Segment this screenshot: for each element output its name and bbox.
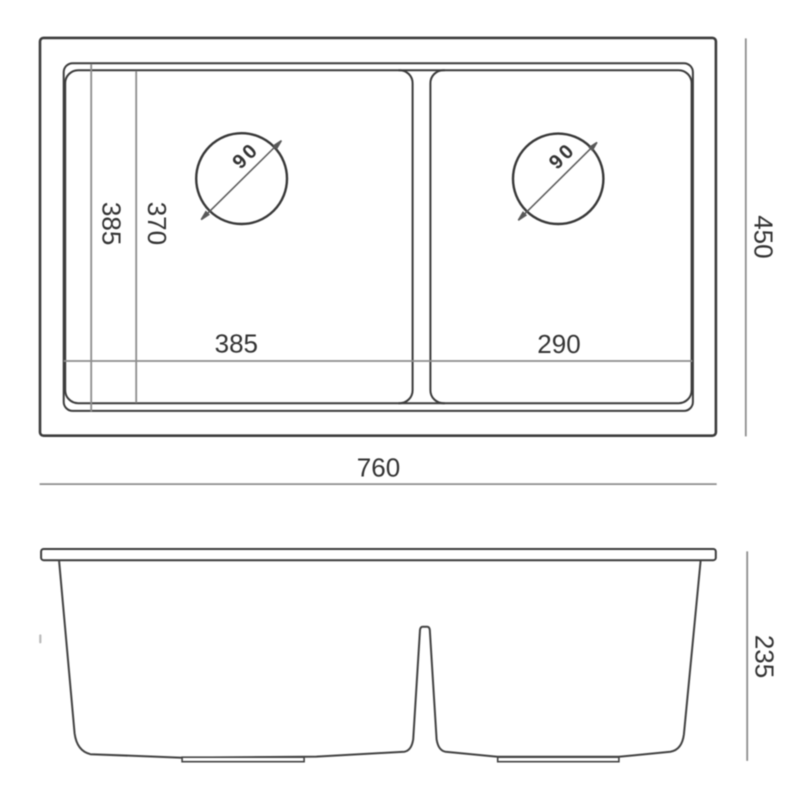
svg-text:290: 290 <box>537 329 580 359</box>
svg-text:90: 90 <box>545 139 580 174</box>
svg-text:385: 385 <box>215 328 258 358</box>
svg-text:90: 90 <box>229 138 264 173</box>
svg-text:235: 235 <box>750 635 780 678</box>
svg-text:450: 450 <box>748 215 778 258</box>
svg-text:385: 385 <box>96 202 126 245</box>
svg-text:760: 760 <box>357 453 400 483</box>
svg-text:370: 370 <box>142 202 172 245</box>
